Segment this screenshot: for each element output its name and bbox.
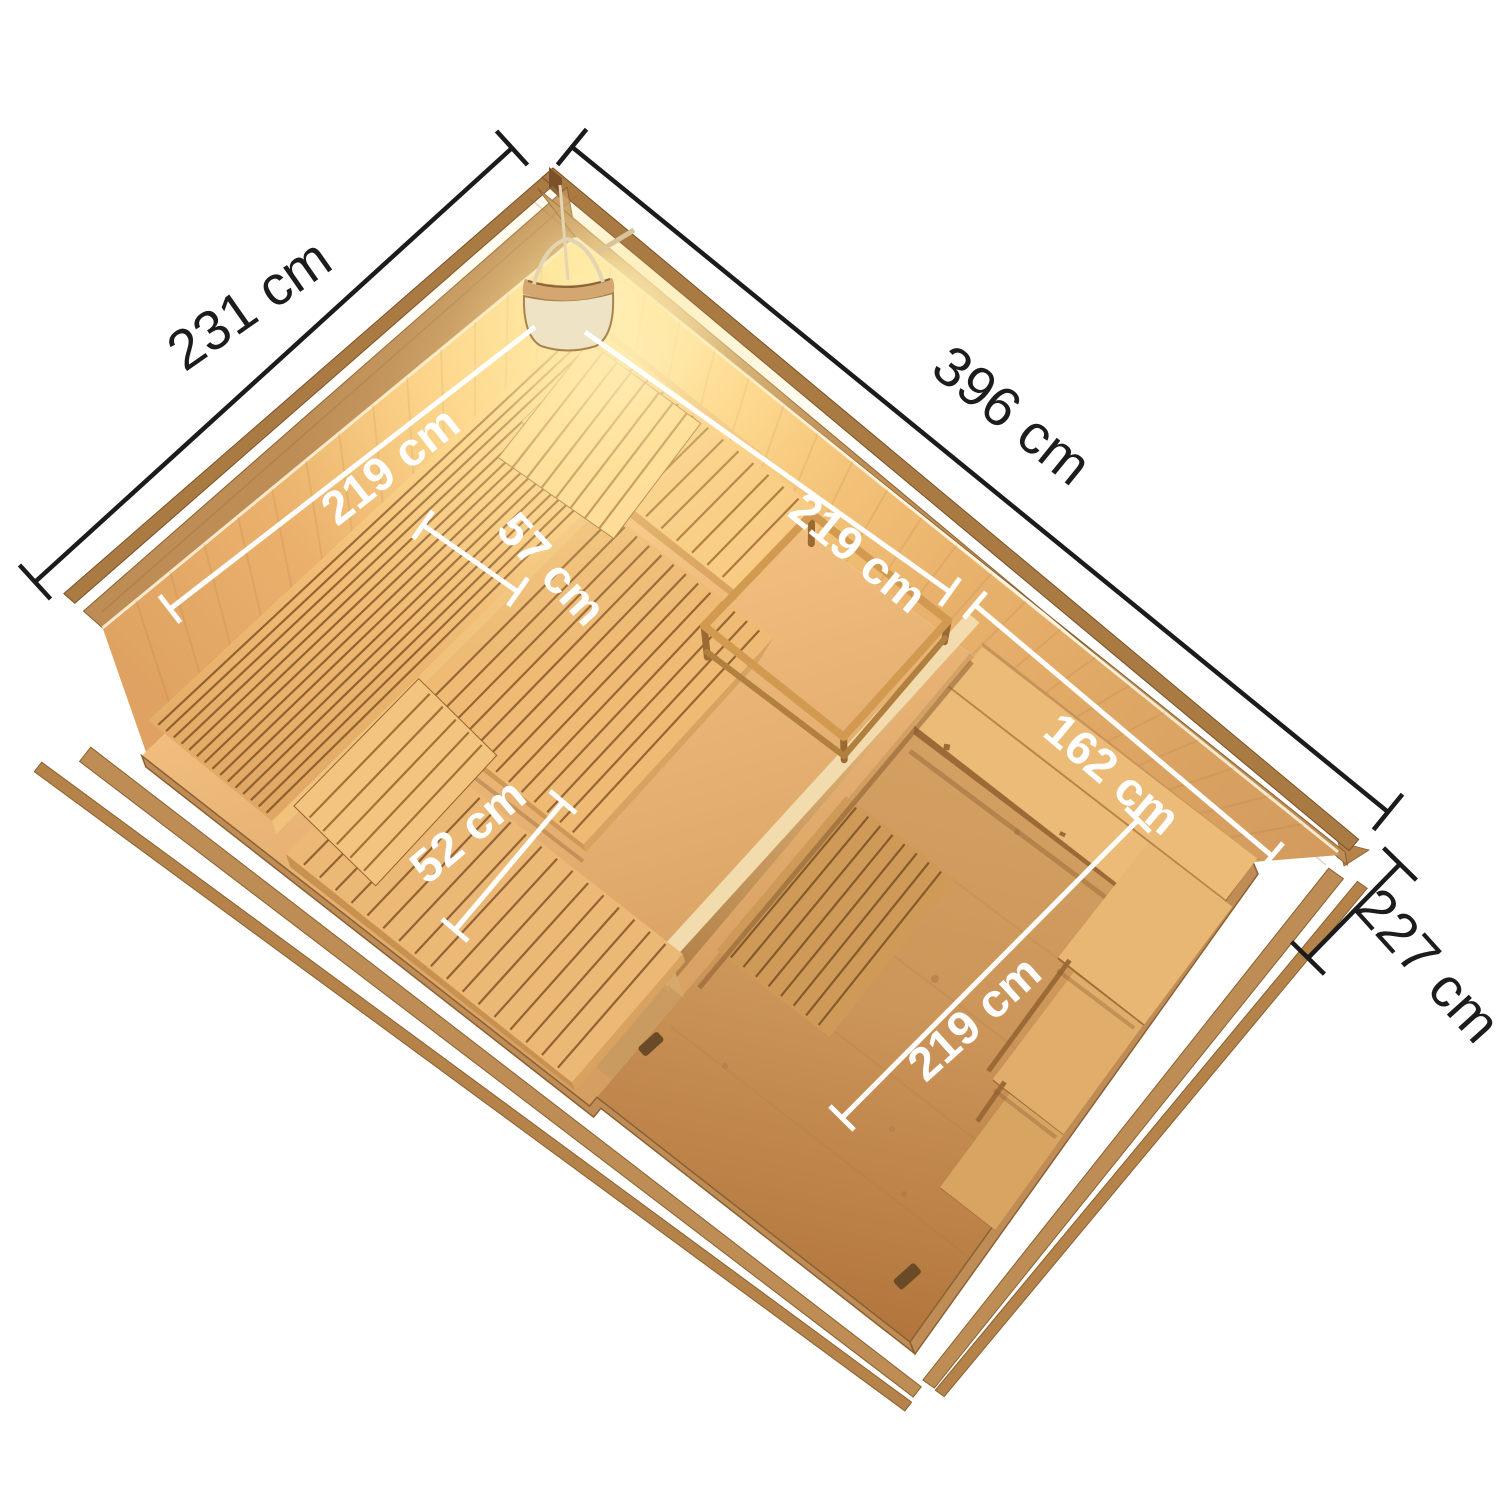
svg-text:231 cm: 231 cm (156, 226, 343, 383)
svg-text:396 cm: 396 cm (921, 333, 1103, 498)
svg-text:227 cm: 227 cm (1344, 876, 1500, 1055)
